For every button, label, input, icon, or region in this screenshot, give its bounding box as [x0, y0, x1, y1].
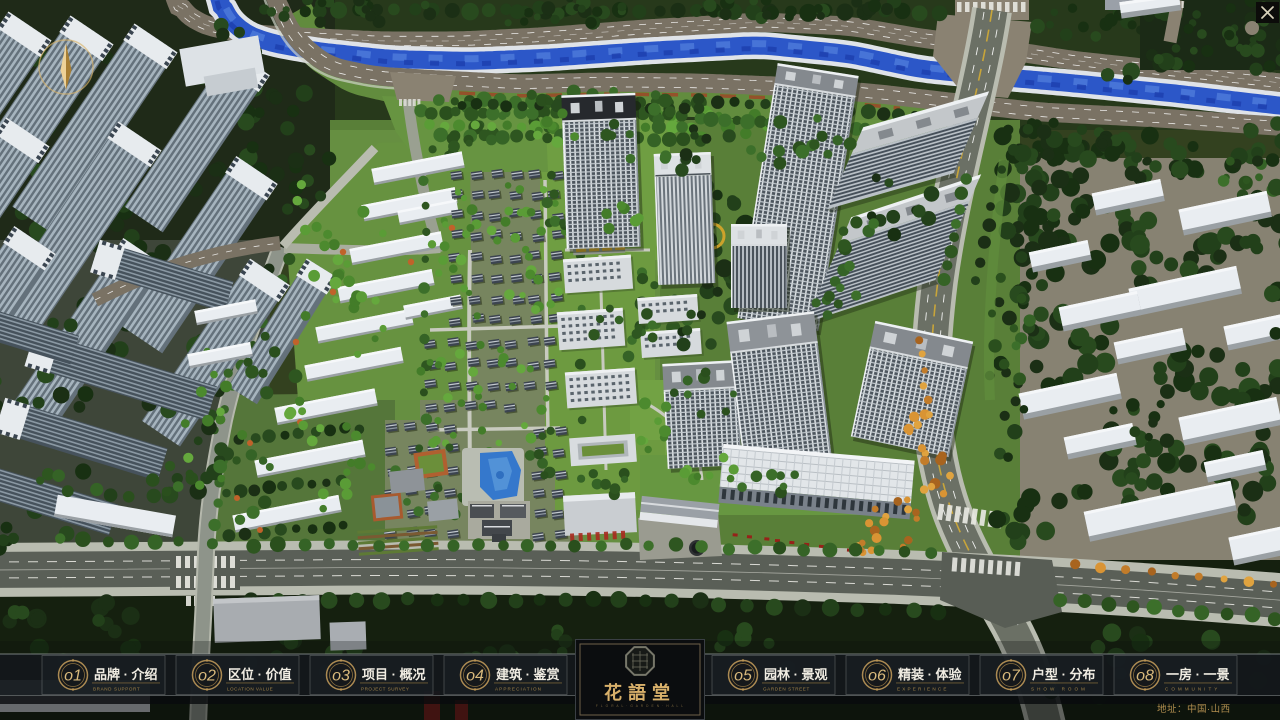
svg-text:F L O R A L · G A R D E N · H: F L O R A L · G A R D E N · H A L L: [596, 704, 684, 708]
svg-text:LOCATION VALUE: LOCATION VALUE: [227, 687, 273, 692]
svg-text:o4: o4: [466, 668, 484, 685]
svg-text:地址：中国·山西: 地址：中国·山西: [1157, 703, 1231, 715]
svg-text:项目 · 概况: 项目 · 概况: [362, 667, 426, 682]
svg-text:PROJECT SURVEY: PROJECT SURVEY: [361, 687, 409, 692]
svg-text:户型 · 分布: 户型 · 分布: [1032, 667, 1096, 682]
svg-text:o5: o5: [734, 668, 752, 685]
svg-text:BRAND SUPPORT: BRAND SUPPORT: [93, 687, 140, 692]
svg-text:建筑 · 鉴赏: 建筑 · 鉴赏: [496, 667, 560, 682]
svg-text:花語堂: 花語堂: [604, 682, 676, 703]
svg-text:o6: o6: [868, 668, 886, 685]
svg-text:o1: o1: [64, 668, 82, 685]
svg-text:o7: o7: [1002, 668, 1021, 685]
svg-text:园林 · 景观: 园林 · 景观: [764, 667, 828, 682]
svg-text:COMMUNITY: COMMUNITY: [1165, 687, 1220, 692]
svg-text:APPRECIATION: APPRECIATION: [495, 687, 542, 692]
svg-text:SHOW ROOM: SHOW ROOM: [1031, 687, 1088, 692]
svg-text:o3: o3: [332, 668, 350, 685]
svg-text:区位 · 价值: 区位 · 价值: [228, 667, 292, 682]
svg-text:一房 · 一景: 一房 · 一景: [1166, 667, 1230, 682]
svg-text:GARDEN STREET: GARDEN STREET: [763, 687, 810, 692]
svg-text:精装 · 体验: 精装 · 体验: [898, 667, 963, 682]
svg-text:o2: o2: [198, 668, 216, 685]
svg-text:o8: o8: [1136, 668, 1154, 685]
svg-text:品牌 · 介绍: 品牌 · 介绍: [94, 667, 158, 682]
svg-text:EXPERIENCE: EXPERIENCE: [897, 687, 949, 692]
